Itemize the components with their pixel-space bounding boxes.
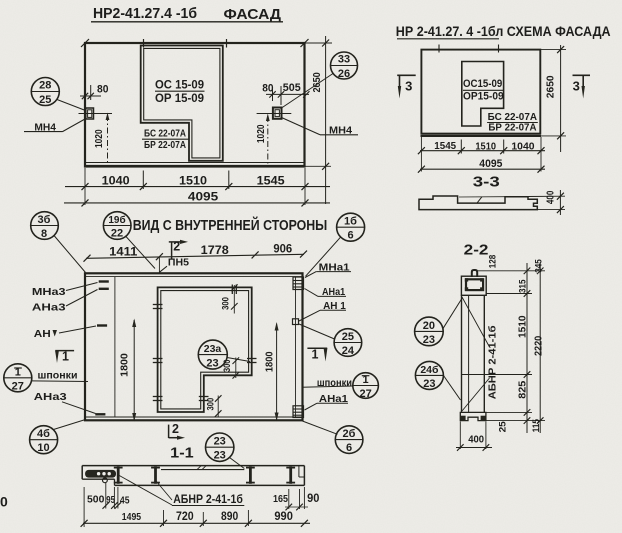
svg-text:23а: 23а bbox=[204, 343, 222, 355]
svg-text:ФАСАД: ФАСАД bbox=[224, 6, 282, 23]
svg-text:1495: 1495 bbox=[122, 511, 141, 523]
svg-text:АБНР 2-41-1б: АБНР 2-41-1б bbox=[486, 325, 498, 399]
svg-text:6: 6 bbox=[347, 230, 353, 242]
svg-text:АН: АН bbox=[34, 328, 51, 340]
svg-text:300: 300 bbox=[206, 398, 217, 411]
svg-text:ОС 15-09: ОС 15-09 bbox=[155, 80, 204, 92]
svg-text:3: 3 bbox=[405, 79, 412, 94]
svg-text:1545: 1545 bbox=[434, 140, 456, 152]
svg-text:25: 25 bbox=[497, 420, 508, 432]
svg-text:1-1: 1-1 bbox=[170, 445, 194, 462]
svg-text:1800: 1800 bbox=[264, 351, 276, 372]
svg-text:23: 23 bbox=[423, 378, 435, 390]
svg-text:300: 300 bbox=[220, 297, 231, 310]
svg-text:ВИД С ВНУТРЕННЕЙ СТОРОНЫ: ВИД С ВНУТРЕННЕЙ СТОРОНЫ bbox=[133, 216, 328, 234]
svg-text:шпонки: шпонки bbox=[317, 377, 352, 389]
svg-text:115: 115 bbox=[531, 418, 542, 432]
svg-text:33: 33 bbox=[338, 54, 350, 66]
svg-text:1510: 1510 bbox=[475, 140, 496, 152]
svg-text:2б: 2б bbox=[343, 428, 356, 440]
svg-text:6: 6 bbox=[346, 442, 352, 454]
svg-text:28: 28 bbox=[39, 80, 51, 92]
svg-text:4095: 4095 bbox=[479, 158, 502, 170]
svg-text:27: 27 bbox=[359, 388, 371, 400]
svg-text:2650: 2650 bbox=[545, 75, 557, 98]
svg-text:1510: 1510 bbox=[518, 315, 529, 338]
svg-text:10: 10 bbox=[37, 442, 49, 454]
svg-text:165: 165 bbox=[273, 493, 288, 505]
svg-text:825: 825 bbox=[518, 380, 529, 398]
svg-text:ОР 15-09: ОР 15-09 bbox=[155, 93, 204, 105]
svg-text:1040: 1040 bbox=[511, 140, 534, 152]
svg-text:95: 95 bbox=[106, 495, 115, 506]
svg-text:АНа3: АНа3 bbox=[34, 391, 67, 403]
svg-text:128: 128 bbox=[488, 255, 499, 269]
svg-text:500: 500 bbox=[87, 494, 105, 506]
svg-text:1: 1 bbox=[363, 374, 369, 386]
svg-text:2220: 2220 bbox=[533, 335, 544, 356]
svg-text:27: 27 bbox=[12, 380, 24, 392]
svg-text:3-3: 3-3 bbox=[473, 174, 500, 191]
svg-text:БР 22-07А: БР 22-07А bbox=[488, 122, 536, 134]
svg-text:315: 315 bbox=[518, 279, 529, 293]
svg-text:1411: 1411 bbox=[109, 246, 138, 258]
svg-text:1020: 1020 bbox=[93, 129, 105, 148]
svg-text:АНа3: АНа3 bbox=[32, 301, 66, 313]
svg-text:90: 90 bbox=[307, 493, 319, 505]
svg-text:400: 400 bbox=[468, 434, 484, 446]
svg-text:шпонки: шпонки bbox=[38, 369, 78, 381]
svg-text:80: 80 bbox=[262, 83, 273, 95]
svg-text:ОС15-09: ОС15-09 bbox=[463, 78, 502, 90]
svg-text:1: 1 bbox=[312, 348, 319, 362]
svg-text:23: 23 bbox=[206, 358, 218, 370]
svg-text:1510: 1510 bbox=[179, 176, 207, 188]
svg-text:АБНР 2-41-1б: АБНР 2-41-1б bbox=[173, 492, 243, 506]
svg-text:2-2: 2-2 bbox=[464, 242, 489, 259]
svg-text:25: 25 bbox=[39, 94, 51, 106]
svg-text:ОР15-09: ОР15-09 bbox=[463, 91, 504, 103]
svg-text:23: 23 bbox=[214, 436, 226, 448]
svg-text:300: 300 bbox=[222, 359, 233, 372]
svg-text:19б: 19б bbox=[108, 214, 125, 226]
svg-text:1б: 1б bbox=[344, 216, 357, 228]
svg-text:24: 24 bbox=[342, 345, 355, 357]
svg-text:1800: 1800 bbox=[119, 353, 131, 377]
svg-text:3: 3 bbox=[573, 79, 580, 94]
svg-text:25: 25 bbox=[342, 331, 354, 343]
svg-text:БР 22-07А: БР 22-07А bbox=[144, 139, 186, 151]
svg-text:2: 2 bbox=[172, 422, 179, 436]
svg-text:1: 1 bbox=[62, 350, 69, 364]
svg-text:345: 345 bbox=[533, 259, 544, 273]
svg-text:4б: 4б bbox=[37, 428, 50, 440]
svg-text:1778: 1778 bbox=[201, 245, 230, 257]
svg-text:505: 505 bbox=[283, 82, 301, 94]
svg-text:26: 26 bbox=[338, 68, 350, 80]
svg-text:НР 2-41.27. 4 -1бл СХЕМА ФАСАД: НР 2-41.27. 4 -1бл СХЕМА ФАСАДА bbox=[396, 23, 611, 39]
svg-text:МНа3: МНа3 bbox=[32, 286, 66, 298]
svg-text:1040: 1040 bbox=[102, 176, 130, 188]
svg-text:24б: 24б bbox=[420, 364, 439, 376]
svg-text:20: 20 bbox=[423, 320, 435, 332]
svg-text:4095: 4095 bbox=[188, 190, 219, 204]
svg-text:0: 0 bbox=[0, 494, 8, 510]
svg-text:2: 2 bbox=[173, 240, 180, 254]
svg-text:1545: 1545 bbox=[257, 176, 286, 188]
svg-text:400: 400 bbox=[546, 190, 557, 204]
svg-text:906: 906 bbox=[273, 244, 292, 256]
svg-text:720: 720 bbox=[176, 511, 194, 523]
svg-text:23: 23 bbox=[423, 334, 435, 346]
svg-text:23: 23 bbox=[214, 450, 226, 462]
svg-text:БС 22-07А: БС 22-07А bbox=[144, 128, 186, 140]
svg-text:22: 22 bbox=[111, 228, 123, 240]
svg-text:890: 890 bbox=[221, 511, 238, 523]
svg-text:990: 990 bbox=[274, 511, 293, 523]
svg-text:3б: 3б bbox=[38, 214, 51, 226]
svg-text:1020: 1020 bbox=[255, 124, 267, 143]
svg-text:45: 45 bbox=[120, 496, 130, 507]
svg-text:2650: 2650 bbox=[311, 72, 323, 92]
svg-text:1: 1 bbox=[15, 366, 21, 378]
svg-text:80: 80 bbox=[97, 84, 109, 96]
svg-text:8: 8 bbox=[41, 228, 47, 240]
svg-text:ПН5: ПН5 bbox=[168, 257, 189, 269]
svg-text:НР2-41.27.4 -1б: НР2-41.27.4 -1б bbox=[93, 6, 197, 22]
